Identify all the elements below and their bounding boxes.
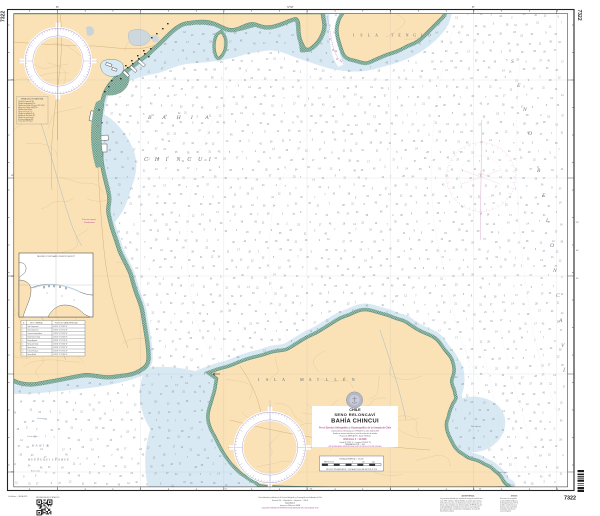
svg-text:AVISOS: AVISOS [511,494,518,497]
svg-text:7322: 7322 [576,10,582,21]
svg-text:A: A [35,444,38,448]
svg-text:Pta Coipúe: Pta Coipúe [498,472,508,474]
svg-text:41°28'18" S 72°58'19" W: 41°28'18" S 72°58'19" W [53,333,68,335]
svg-text:C: C [556,293,560,299]
svg-text:O: O [428,34,431,38]
svg-text:20": 20" [576,222,579,224]
svg-text:E: E [66,458,69,462]
svg-text:A: A [558,318,563,324]
svg-text:Fondo sucio: Fondo sucio [27,436,39,438]
svg-text:Terminal Pesquero: Terminal Pesquero [28,351,39,353]
svg-text:41°29'22" S 72°56'26" W: 41°29'22" S 72°56'26" W [53,337,68,339]
svg-text:6 Boya lum canal V 6s: 6 Boya lum canal V 6s [18,111,33,113]
svg-text:5 Baliza ciega Pelluco: 5 Baliza ciega Pelluco [18,109,32,111]
svg-text:A: A [309,377,312,382]
svg-text:A: A [161,115,166,121]
svg-text:ESCALA 1 : 10.000: ESCALA 1 : 10.000 [344,437,368,441]
svg-text:E: E [541,193,546,199]
svg-text:E: E [33,458,36,462]
svg-text:41°29'14" S 72°57'12" W: 41°29'14" S 72°57'12" W [53,330,68,332]
svg-text:N: N [552,268,557,274]
svg-text:S: S [360,34,362,38]
svg-text:É: É [343,377,346,382]
svg-text:U: U [198,157,203,163]
svg-text:L: L [54,458,57,462]
svg-text:57': 57' [472,6,476,9]
svg-text:L: L [334,377,337,382]
svg-text:A: A [57,458,60,462]
svg-text:N: N [522,107,527,113]
svg-text:www.shoa.cl: www.shoa.cl [285,502,295,504]
svg-text:L: L [545,218,549,224]
svg-text:7322: 7322 [1,11,7,22]
svg-text:S: S [511,59,514,65]
svg-text:100: 100 [362,462,365,464]
svg-text:L: L [274,377,277,382]
svg-text:41°28'42" S 72°58'06" W: 41°28'42" S 72°58'06" W [53,354,68,356]
svg-text:E: E [516,83,521,89]
svg-text:41°28'10" S 72°56'05" W: 41°28'10" S 72°56'05" W [53,326,68,328]
svg-text:11 Luz aérea El Tepual: 11 Luz aérea El Tepual [18,121,33,123]
svg-text:7 Baliza lum Maillén R 4s: 7 Baliza lum Maillén R 4s [18,113,34,115]
svg-text:A: A [45,444,48,448]
svg-text:L: L [51,458,54,462]
svg-text:N: N [352,377,355,382]
svg-text:G: G [413,34,416,38]
svg-text:Restinga: Restinga [37,417,46,420]
svg-text:B: B [32,444,34,448]
svg-text:41°29'30" S 72°58'40" W: 41°29'30" S 72°58'40" W [53,344,68,346]
svg-text:41°28'26" S 72°57'33" W: 41°28'26" S 72°57'33" W [53,340,68,342]
svg-text:H: H [154,157,160,163]
svg-text:Rampa Maillén: Rampa Maillén [28,354,37,356]
svg-text:O: O [550,243,554,249]
svg-text:200: 200 [372,462,375,464]
svg-text:M: M [300,377,304,382]
svg-text:V: V [561,343,565,349]
svg-text:A: A [282,377,285,382]
svg-text:Bco Quenu: Bco Quenu [471,426,482,428]
svg-text:41°28'34" S 72°56'47" W: 41°28'34" S 72°56'47" W [53,347,68,349]
svg-text:ADVERTENCIA: ADVERTENCIA [462,494,476,497]
svg-text:L: L [326,377,329,382]
svg-text:Arena fina: Arena fina [30,470,41,473]
svg-text:Fondeadero: Fondeadero [84,222,96,224]
svg-text:RECINTO PORTUARIO PUERTO MONTT: RECINTO PORTUARIO PUERTO MONTT [37,255,76,258]
svg-text:BAHÍA CHINCUI: BAHÍA CHINCUI [331,416,379,424]
svg-text:72°58': 72°58' [287,6,294,9]
svg-text:Zona de espera: Zona de espera [82,219,97,221]
svg-text:O: O [528,131,532,137]
svg-text:A: A [204,115,209,121]
svg-text:A: A [375,34,378,38]
svg-text:7322: 7322 [564,496,576,502]
svg-text:Marina Oxxean: Marina Oxxean [28,347,37,349]
svg-text:METROS 100: METROS 100 [324,462,334,464]
svg-text:4 Boya lum Chincui Gp(2)R 9s: 4 Boya lum Chincui Gp(2)R 9s [18,107,38,109]
svg-text:ESCALA GRÁFICA 1 : 10.000: ESCALA GRÁFICA 1 : 10.000 [340,457,364,460]
svg-text:59': 59' [56,6,60,9]
svg-text:Por el Servicio Hidrográfico y: Por el Servicio Hidrográfico y Oceanográ… [319,427,392,430]
svg-text:SEÑALIZACIÓN MARÍTIMA: SEÑALIZACIÓN MARÍTIMA [21,98,44,101]
svg-text:40": 40" [576,250,579,252]
svg-text:0: 0 [352,462,353,464]
svg-text:R: R [536,168,541,174]
svg-text:Rampa Isla Tenglo: Rampa Isla Tenglo [28,344,39,346]
svg-text:SENO RELONCAVÍ: SENO RELONCAVÍ [334,412,376,417]
svg-text:41°29'38" S 72°57'54" W: 41°29'38" S 72°57'54" W [53,351,68,353]
svg-text:B: B [148,115,152,121]
svg-text:1a Edición — SHOA 2021: 1a Edición — SHOA 2021 [8,495,27,498]
svg-text:10 Luces enfilación 052°: 10 Luces enfilación 052° [18,119,34,121]
svg-text:N: N [406,34,409,38]
